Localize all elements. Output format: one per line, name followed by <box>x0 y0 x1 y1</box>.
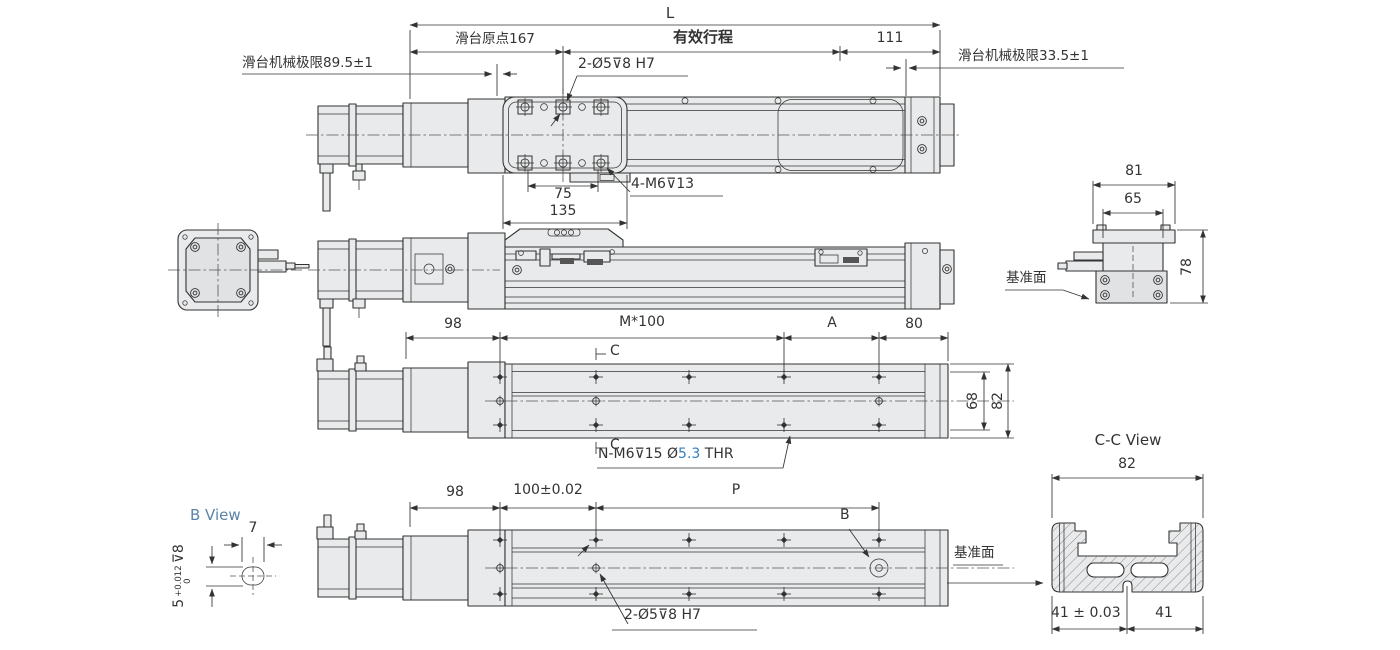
dim-total-length: L <box>655 5 685 22</box>
drive-housing-side <box>468 233 505 309</box>
tol-lower: 0 <box>184 565 193 596</box>
dim-75: 75 <box>544 187 582 202</box>
section-mark-c-top: C <box>610 344 620 359</box>
dim-slide-origin: 滑台原点167 <box>420 32 570 47</box>
dim-81: 81 <box>1116 164 1152 179</box>
dim-111: 111 <box>870 31 910 46</box>
technical-drawing: L 滑台原点167 有效行程 111 滑台机械极限89.5±1 滑台机械极限33… <box>0 0 1400 650</box>
motor-cable <box>323 173 330 211</box>
dim-82-base: 82 <box>991 381 1007 421</box>
dim-65: 65 <box>1115 192 1151 207</box>
label-mech-limit-left: 滑台机械极限89.5±1 <box>242 56 373 71</box>
dim-effective-stroke: 有效行程 <box>638 29 768 46</box>
label-pin-holes-top: 2-Ø5⊽8 H7 <box>578 57 655 72</box>
drawing-linework <box>0 0 1400 650</box>
section-slot-right <box>1131 563 1168 577</box>
dim-82-cc: 82 <box>1109 457 1145 472</box>
section-slot-left <box>1087 563 1124 577</box>
dim-pitch-m100: M*100 <box>612 315 672 330</box>
dim-a: A <box>818 316 846 331</box>
rear-connector <box>258 250 278 259</box>
dim-p: P <box>724 483 748 498</box>
label-mount-holes: 4-M6⊽13 <box>631 177 694 192</box>
label-thread-size: 5.3 <box>678 446 700 462</box>
depth-symbol: ⊽8 <box>171 544 187 563</box>
dim-41-tol: 41 ± 0.03 <box>1051 606 1121 621</box>
dim-100-tol: 100±0.02 <box>500 483 596 498</box>
b-view-title: B View <box>190 507 241 524</box>
label-datum-right: 基准面 <box>1006 271 1047 286</box>
dim-5-tolerance: +0.0120 <box>175 565 192 596</box>
label-b-marker: B <box>840 508 850 523</box>
label-thread-prefix: N-M6⊽15 Ø <box>598 446 678 462</box>
dim-68: 68 <box>966 381 982 421</box>
dim-80: 80 <box>896 317 932 332</box>
label-pin-holes-bottom: 2-Ø5⊽8 H7 <box>624 608 701 623</box>
motor-rear-view <box>168 223 309 317</box>
dim-135: 135 <box>538 204 588 219</box>
dim-78: 78 <box>1180 249 1196 285</box>
label-thread-holes: N-M6⊽15 Ø5.3 THR <box>598 447 734 462</box>
dim-41: 41 <box>1144 606 1184 621</box>
end-block-side <box>905 243 940 309</box>
dim-7: 7 <box>244 521 262 536</box>
dim-98-base: 98 <box>435 317 471 332</box>
dim-5: 5 <box>171 599 187 608</box>
dim-5-tol-depth: 5+0.0120⊽8 <box>172 530 192 622</box>
carriage-side <box>505 229 623 247</box>
label-mech-limit-right: 滑台机械极限33.5±1 <box>958 49 1089 64</box>
b-detail-view <box>206 537 282 607</box>
motor-connector <box>320 164 333 173</box>
label-thread-suffix: THR <box>700 446 733 462</box>
label-datum-bottom: 基准面 <box>954 546 995 561</box>
drive-housing-top <box>468 99 505 173</box>
dim-98-bottom: 98 <box>437 485 473 500</box>
cc-view-title: C-C View <box>1078 432 1178 449</box>
